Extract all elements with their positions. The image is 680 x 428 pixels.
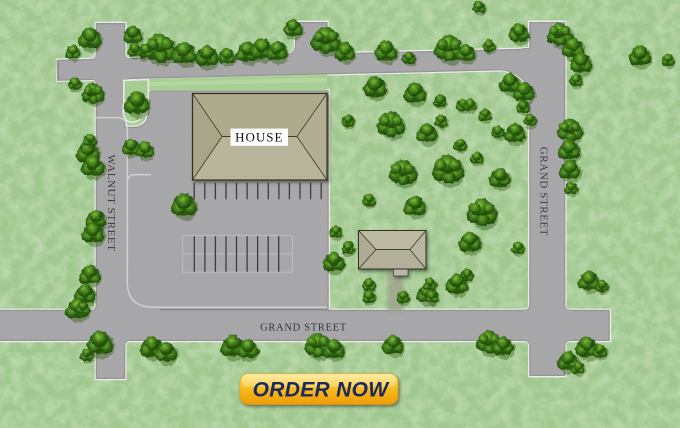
svg-text:WALNUT STREET: WALNUT STREET bbox=[105, 154, 117, 251]
svg-text:HOUSE: HOUSE bbox=[235, 130, 283, 145]
svg-text:ORDER NOW: ORDER NOW bbox=[253, 379, 391, 402]
svg-text:GRAND STREET: GRAND STREET bbox=[538, 147, 550, 236]
svg-text:GRAND STREET: GRAND STREET bbox=[260, 323, 347, 334]
